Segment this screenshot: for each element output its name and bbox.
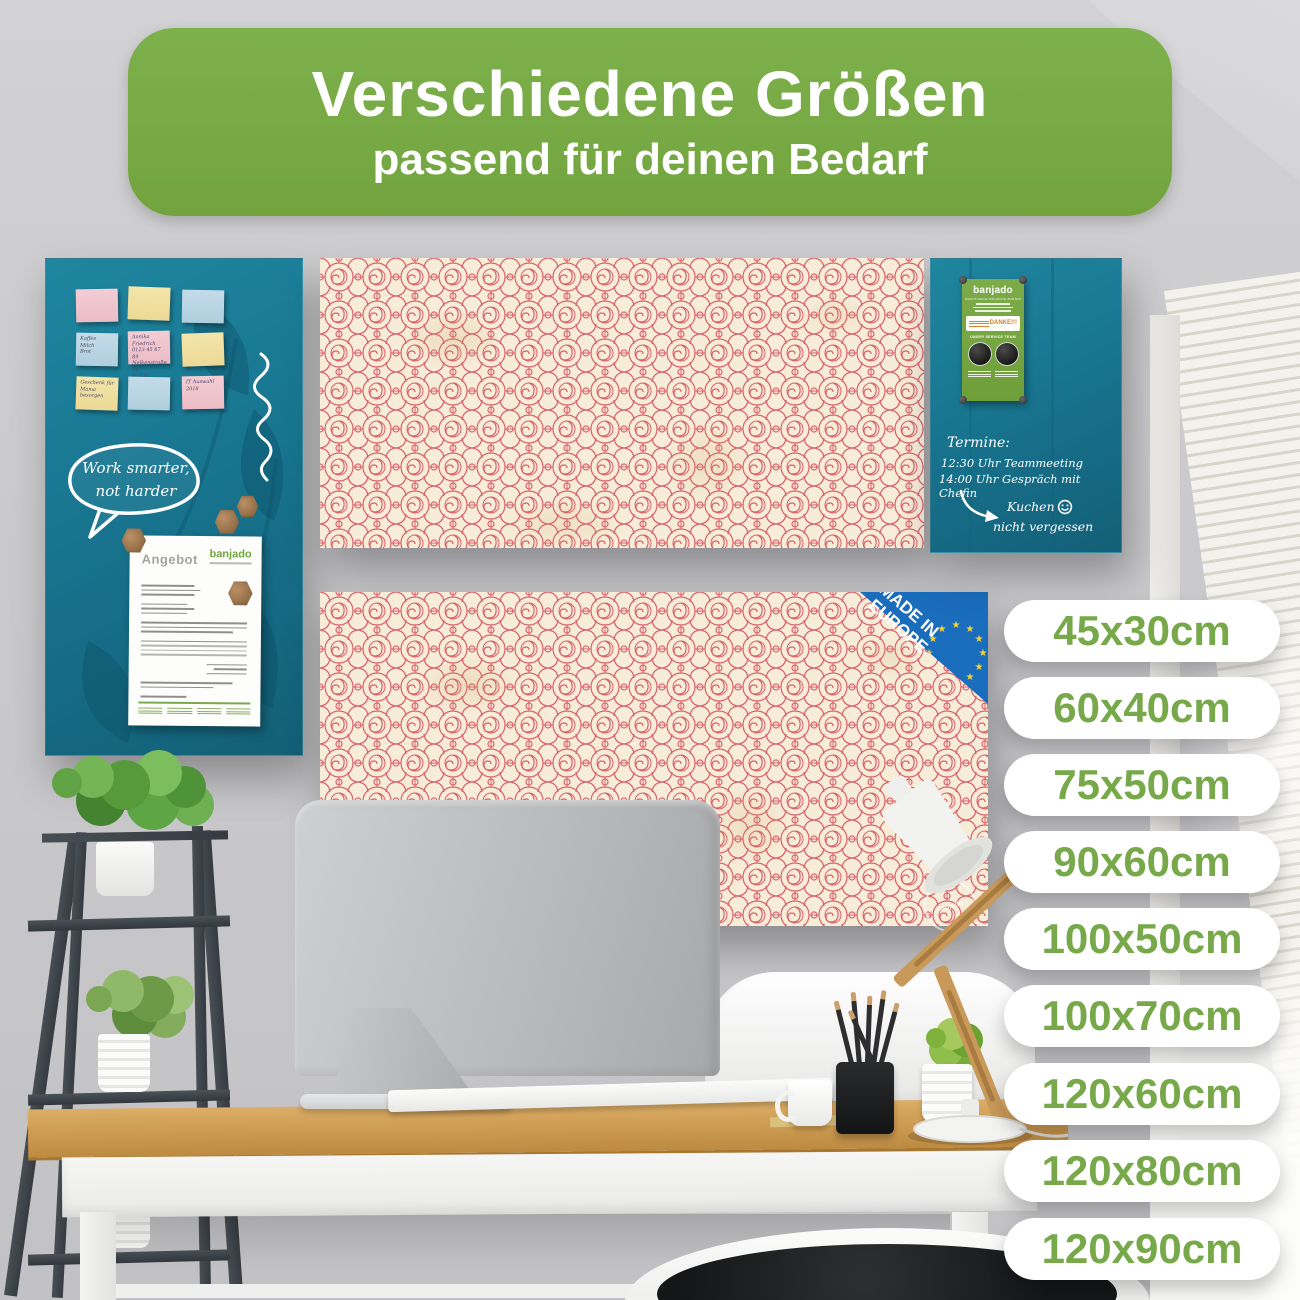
size-option: 45x30cm <box>1004 600 1280 662</box>
document-footer <box>138 701 250 714</box>
doc-text-line <box>207 673 247 675</box>
doc-text-line <box>141 594 194 596</box>
flyer-text-line <box>976 303 1010 305</box>
sticky-note <box>128 377 171 411</box>
doc-text-line <box>141 686 214 688</box>
size-option: 60x40cm <box>1004 677 1280 739</box>
sticky-note <box>181 332 224 366</box>
plant-pot <box>98 1034 150 1092</box>
lamp-head <box>860 755 1001 903</box>
smiley-icon <box>1057 499 1073 515</box>
dog-photo <box>968 342 992 366</box>
doc-text-line <box>141 640 247 642</box>
size-option: 100x70cm <box>1004 985 1280 1047</box>
banjado-flyer: banjado MACHT DEINE WOHNUNG BUNTER DANKE… <box>962 279 1024 401</box>
doc-text-line <box>141 608 194 610</box>
svg-text:★: ★ <box>929 662 938 673</box>
svg-text:★: ★ <box>975 662 984 673</box>
doc-text-line <box>207 664 247 666</box>
flyer-text-line <box>973 307 1013 309</box>
headline-banner: Verschiedene Größen passend für deinen B… <box>128 28 1172 216</box>
coupon-text-lines <box>969 319 989 327</box>
note-text: Kaffee Milch Brot <box>76 333 118 356</box>
sticky-note: Kaffee Milch Brot <box>76 333 119 367</box>
document-title: Angebot <box>142 552 198 567</box>
size-option: 90x60cm <box>1004 831 1280 893</box>
doc-text-line <box>141 649 247 651</box>
pattern-aging-blotches <box>320 258 924 548</box>
handwritten-reminder: Kuchen <box>1007 499 1055 514</box>
squiggle-doodle <box>246 349 276 489</box>
sticky-note <box>127 286 170 320</box>
doc-text-line <box>141 654 247 656</box>
document-body-lines <box>128 581 261 698</box>
doc-text-line <box>141 682 233 684</box>
magnet-pin-icon <box>959 396 967 404</box>
magnet-pin-icon <box>1019 396 1027 404</box>
magnet-pin-icon <box>1019 276 1027 284</box>
flyer-text-line <box>975 310 1011 312</box>
size-option: 75x50cm <box>1004 754 1280 816</box>
magnet-pin-icon <box>959 276 967 284</box>
svg-text:★: ★ <box>966 624 975 635</box>
size-option: 120x80cm <box>1004 1140 1280 1202</box>
made-in-europe-badge: ★★★ ★★★ ★★★ ★★★ MADE IN EUROPE <box>860 592 988 704</box>
svg-text:★: ★ <box>925 648 934 659</box>
service-team-text: UNSER SERVICE TEAM <box>962 335 1024 339</box>
banjado-logo: banjado <box>209 548 251 560</box>
svg-text:★: ★ <box>975 634 984 645</box>
dog-photo <box>995 342 1019 366</box>
doc-text-line <box>141 589 200 591</box>
doc-text-line <box>141 585 194 587</box>
plant-foliage <box>52 768 82 798</box>
svg-text:★: ★ <box>979 648 988 659</box>
sticky-note: Geschenk für Mama besorgen <box>75 376 118 410</box>
danke-text: DANKE!!! <box>990 320 1017 326</box>
banner-subtitle: passend für deinen Bedarf <box>372 138 927 182</box>
patterned-board-small <box>320 258 924 548</box>
desk-apron <box>62 1151 1037 1218</box>
product-scene: Kaffee Milch Brot Annika Friedrich 0123 … <box>0 0 1300 1300</box>
flyer-tagline: MACHT DEINE WOHNUNG BUNTER <box>962 297 1024 301</box>
doc-text-line <box>141 626 247 628</box>
flyer-coupon-box: DANKE!!! <box>966 316 1020 331</box>
svg-text:★: ★ <box>952 620 961 631</box>
logo-subline <box>210 562 252 564</box>
doc-text-line <box>141 622 247 624</box>
sticky-note <box>76 289 119 323</box>
handwritten-schedule-line: 12:30 Uhr Teammeeting <box>941 456 1083 470</box>
note-text: Geschenk für Mama besorgen <box>76 376 119 400</box>
doc-text-line <box>141 631 233 633</box>
sticky-note: Annika Friedrich 0123 45 67 89 Nelkenstr… <box>128 331 171 365</box>
pinned-document: Angebot banjado <box>128 535 262 726</box>
size-option: 100x50cm <box>1004 908 1280 970</box>
plant-pot <box>96 842 154 896</box>
doc-text-line <box>141 612 187 614</box>
doc-text-line <box>141 603 187 605</box>
doc-text-line <box>141 645 247 647</box>
sticky-note: IT Auswahl 2018 <box>182 376 225 410</box>
magnet-board-right: banjado MACHT DEINE WOHNUNG BUNTER DANKE… <box>930 258 1122 553</box>
speech-bubble-text: Work smarter, not harder <box>76 457 196 502</box>
doc-text-line <box>140 696 186 698</box>
dog-photos <box>962 342 1024 366</box>
svg-text:★: ★ <box>952 676 961 687</box>
note-text: IT Auswahl 2018 <box>182 376 224 393</box>
svg-text:★: ★ <box>938 672 947 683</box>
handwritten-reminder: nicht vergessen <box>993 519 1093 534</box>
magnet-board-left: Kaffee Milch Brot Annika Friedrich 0123 … <box>45 258 303 756</box>
desk-leg <box>80 1212 116 1300</box>
mug-handle <box>775 1090 801 1122</box>
banjado-logo: banjado <box>962 285 1024 296</box>
size-option: 120x90cm <box>1004 1218 1280 1280</box>
handwritten-schedule-title: Termine: <box>947 435 1010 451</box>
doc-text-line <box>214 668 247 670</box>
size-option: 120x60cm <box>1004 1063 1280 1125</box>
flyer-footer-lines <box>968 370 1018 378</box>
banner-title: Verschiedene Größen <box>311 62 988 126</box>
plant-foliage <box>86 986 112 1012</box>
sticky-note <box>182 290 225 324</box>
svg-text:★: ★ <box>966 672 975 683</box>
